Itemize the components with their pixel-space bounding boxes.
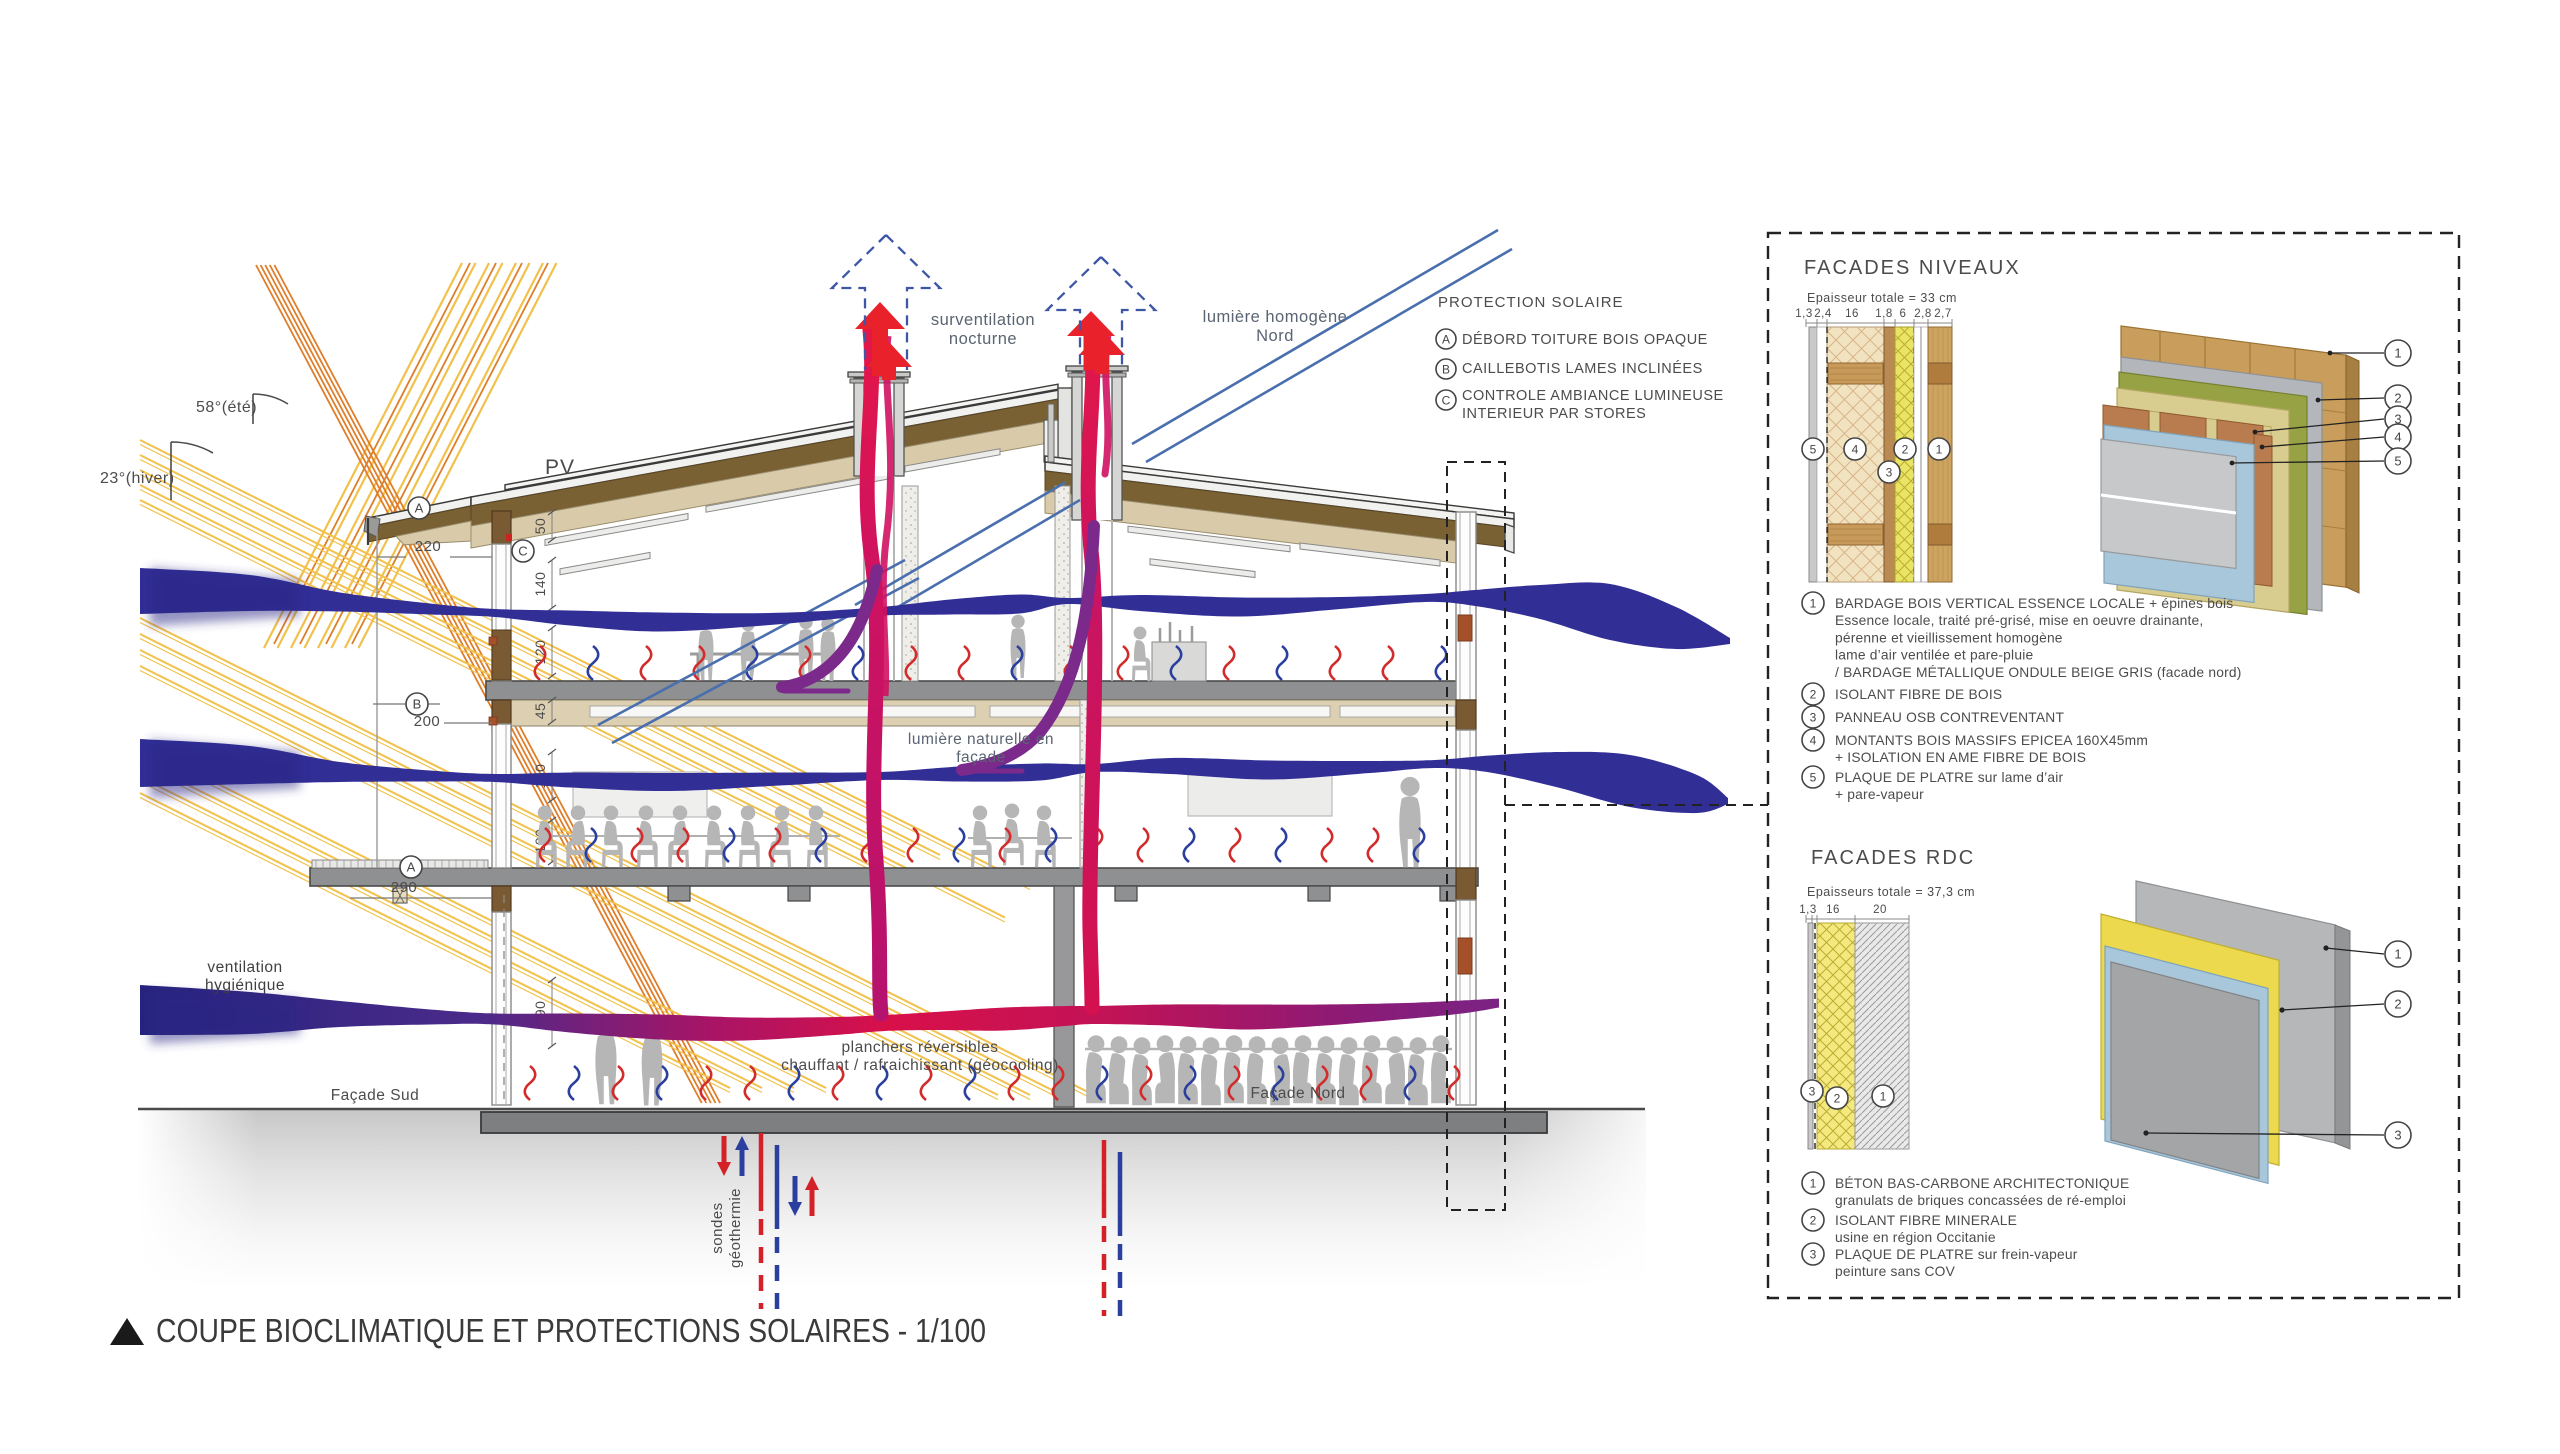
- svg-text:4: 4: [1810, 733, 1817, 747]
- svg-text:3: 3: [1810, 1247, 1817, 1261]
- svg-text:2,4: 2,4: [1814, 308, 1832, 320]
- svg-text:2,8: 2,8: [1914, 308, 1932, 320]
- svg-text:planchers réversibles: planchers réversibles: [842, 1039, 999, 1056]
- svg-text:FACADES RDC: FACADES RDC: [1811, 847, 1975, 869]
- svg-text:50: 50: [532, 518, 548, 535]
- svg-text:PLAQUE DE PLATRE sur frein-vap: PLAQUE DE PLATRE sur frein-vapeur: [1835, 1247, 2078, 1262]
- svg-text:chauffant / rafraichissant (gé: chauffant / rafraichissant (géocooling): [781, 1057, 1059, 1074]
- svg-text:Epaisseur totale = 33 cm: Epaisseur totale = 33 cm: [1807, 291, 1957, 305]
- svg-text:1: 1: [2394, 947, 2401, 962]
- svg-text:COUPE BIOCLIMATIQUE ET PROTECT: COUPE BIOCLIMATIQUE ET PROTECTIONS SOLAI…: [156, 1312, 986, 1349]
- svg-text:CAILLEBOTIS LAMES INCLINÉES: CAILLEBOTIS LAMES INCLINÉES: [1462, 360, 1703, 377]
- svg-text:pérenne et vieillissement homo: pérenne et vieillissement homogène: [1835, 630, 2063, 645]
- svg-text:+ pare-vapeur: + pare-vapeur: [1835, 787, 1924, 802]
- svg-text:PLAQUE DE PLATRE sur lame d’ai: PLAQUE DE PLATRE sur lame d’air: [1835, 770, 2064, 785]
- svg-text:lumière homogène: lumière homogène: [1203, 308, 1348, 326]
- svg-text:2: 2: [1902, 442, 1909, 456]
- svg-text:BARDAGE BOIS VERTICAL ESSENCE: BARDAGE BOIS VERTICAL ESSENCE LOCALE + é…: [1835, 596, 2233, 611]
- svg-text:1: 1: [2394, 346, 2401, 361]
- svg-text:2: 2: [2394, 997, 2401, 1012]
- svg-text:DÉBORD TOITURE BOIS OPAQUE: DÉBORD TOITURE BOIS OPAQUE: [1462, 331, 1708, 348]
- svg-text:Essence locale, traité pré-gri: Essence locale, traité pré-grisé, mise e…: [1835, 613, 2203, 628]
- svg-text:3: 3: [1809, 1084, 1816, 1098]
- svg-text:220: 220: [415, 538, 442, 555]
- svg-text:ISOLANT FIBRE DE BOIS: ISOLANT FIBRE DE BOIS: [1835, 687, 2002, 702]
- svg-text:140: 140: [532, 572, 548, 597]
- svg-text:58°(été): 58°(été): [196, 399, 257, 416]
- svg-text:3: 3: [1810, 710, 1817, 724]
- svg-text:1,8: 1,8: [1875, 308, 1893, 320]
- svg-text:FACADES NIVEAUX: FACADES NIVEAUX: [1804, 257, 2021, 279]
- svg-text:5: 5: [2394, 454, 2401, 469]
- svg-text:5: 5: [1810, 770, 1817, 784]
- svg-text:C: C: [518, 544, 527, 559]
- svg-text:2: 2: [1810, 1213, 1817, 1227]
- svg-text:géothermie: géothermie: [727, 1188, 744, 1268]
- svg-text:16: 16: [1826, 904, 1840, 916]
- svg-text:+ ISOLATION EN AME FIBRE DE BO: + ISOLATION EN AME FIBRE DE BOIS: [1835, 750, 2086, 765]
- svg-text:1,3: 1,3: [1799, 904, 1817, 916]
- svg-text:sondes: sondes: [709, 1202, 726, 1253]
- svg-text:20: 20: [1873, 904, 1887, 916]
- svg-text:Epaisseurs totale = 37,3 cm: Epaisseurs totale = 37,3 cm: [1807, 885, 1975, 899]
- svg-text:2: 2: [1810, 687, 1817, 701]
- svg-text:PANNEAU OSB CONTREVENTANT: PANNEAU OSB CONTREVENTANT: [1835, 710, 2064, 725]
- svg-text:MONTANTS BOIS MASSIFS EPICEA 1: MONTANTS BOIS MASSIFS EPICEA 160X45mm: [1835, 733, 2148, 748]
- svg-text:ISOLANT FIBRE MINERALE: ISOLANT FIBRE MINERALE: [1835, 1213, 2017, 1228]
- svg-text:A: A: [407, 860, 416, 875]
- svg-text:PROTECTION SOLAIRE: PROTECTION SOLAIRE: [1438, 294, 1624, 311]
- svg-text:A: A: [1442, 332, 1450, 346]
- svg-text:lame d’air ventilée et pare-pl: lame d’air ventilée et pare-pluie: [1835, 648, 2033, 663]
- svg-text:usine en région Occitanie: usine en région Occitanie: [1835, 1230, 1996, 1245]
- svg-text:1,3: 1,3: [1795, 308, 1813, 320]
- svg-text:BÉTON BAS-CARBONE ARCHITECTONI: BÉTON BAS-CARBONE ARCHITECTONIQUE: [1835, 1175, 2129, 1191]
- svg-text:16: 16: [1845, 308, 1859, 320]
- svg-text:lumière naturelle en: lumière naturelle en: [908, 731, 1054, 748]
- svg-text:45: 45: [532, 703, 548, 720]
- svg-text:C: C: [1442, 393, 1451, 407]
- svg-text:290: 290: [391, 879, 418, 896]
- svg-text:23°(hiver): 23°(hiver): [100, 470, 175, 487]
- svg-text:1: 1: [1936, 442, 1943, 456]
- svg-text:4: 4: [2394, 430, 2401, 445]
- svg-text:2: 2: [1834, 1091, 1841, 1105]
- svg-text:2,7: 2,7: [1934, 308, 1952, 320]
- svg-text:A: A: [415, 501, 424, 516]
- svg-text:façade: façade: [956, 749, 1006, 766]
- svg-text:2: 2: [2394, 391, 2401, 406]
- svg-text:4: 4: [1852, 442, 1859, 456]
- svg-text:1: 1: [1810, 596, 1817, 610]
- svg-text:granulats de briques concassée: granulats de briques concassées de ré-em…: [1835, 1193, 2126, 1208]
- svg-text:3: 3: [1886, 465, 1893, 479]
- svg-text:/ BARDAGE MÉTALLIQUE ONDULE BE: / BARDAGE MÉTALLIQUE ONDULE BEIGE GRIS (…: [1835, 664, 2242, 680]
- svg-text:peinture sans COV: peinture sans COV: [1835, 1264, 1956, 1279]
- svg-text:surventilation: surventilation: [931, 311, 1035, 329]
- svg-text:PV: PV: [545, 456, 575, 479]
- svg-text:3: 3: [2394, 1128, 2401, 1143]
- svg-text:Façade Nord: Façade Nord: [1250, 1085, 1345, 1102]
- svg-text:1: 1: [1880, 1089, 1887, 1103]
- svg-text:5: 5: [1810, 442, 1817, 456]
- svg-text:B: B: [413, 697, 422, 712]
- svg-text:CONTROLE AMBIANCE LUMINEUSE: CONTROLE AMBIANCE LUMINEUSE: [1462, 388, 1724, 404]
- svg-text:6: 6: [1900, 308, 1907, 320]
- svg-text:Façade Sud: Façade Sud: [331, 1087, 420, 1104]
- svg-text:1: 1: [1810, 1176, 1817, 1190]
- svg-text:hygiénique: hygiénique: [205, 977, 285, 994]
- svg-text:B: B: [1442, 362, 1450, 376]
- svg-text:nocturne: nocturne: [949, 330, 1017, 348]
- svg-text:Nord: Nord: [1256, 327, 1294, 345]
- svg-text:ventilation: ventilation: [207, 959, 282, 976]
- svg-text:INTERIEUR PAR STORES: INTERIEUR PAR STORES: [1462, 406, 1646, 422]
